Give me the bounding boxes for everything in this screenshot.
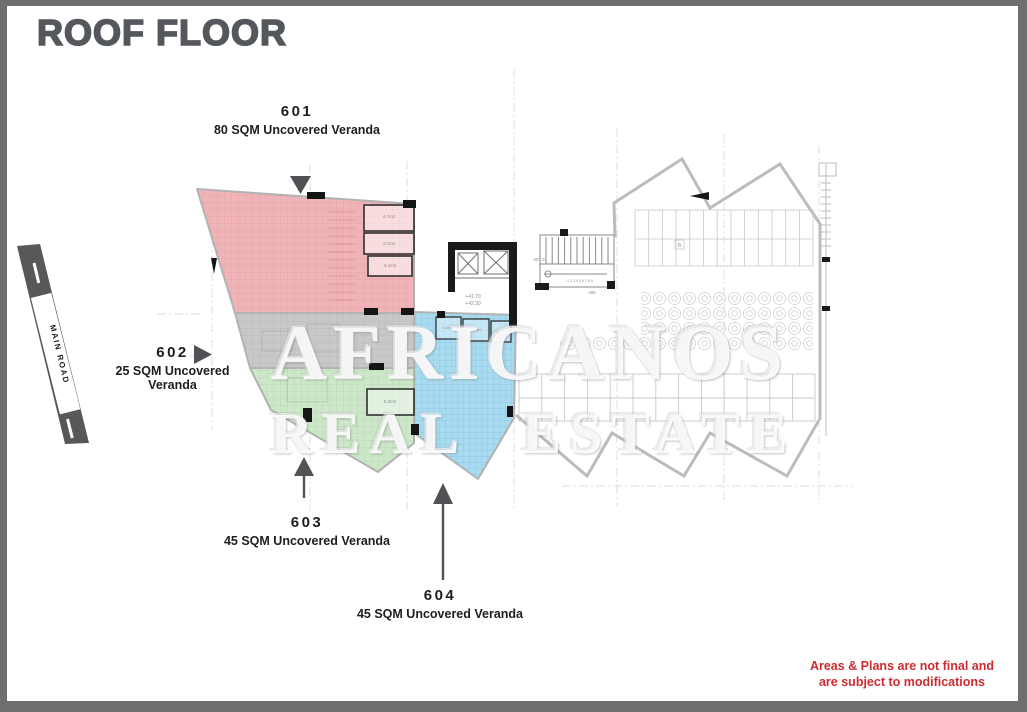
svg-text:5.0m2: 5.0m2: [384, 399, 397, 404]
unit-604-arrow-up-icon: [433, 483, 453, 580]
svg-text:1 2 3 4 5 6 7 8 9: 1 2 3 4 5 6 7 8 9: [567, 279, 593, 283]
svg-text:3.6m2: 3.6m2: [470, 327, 482, 332]
building-core: [448, 229, 615, 326]
svg-text:485: 485: [588, 290, 596, 295]
core-wall-top: [448, 242, 516, 250]
disclaimer-line2: are subject to modifications: [782, 674, 1022, 690]
unit-604-description: 45 SQM Uncovered Veranda: [355, 607, 525, 621]
unit-603-description: 45 SQM Uncovered Veranda: [222, 534, 392, 548]
unit-602-description: 25 SQM Uncovered Veranda: [90, 364, 255, 392]
svg-text:4.7m2: 4.7m2: [383, 241, 396, 246]
core-wall-chunk-1: [535, 283, 549, 290]
unit-602-number: 602: [90, 344, 255, 361]
circle-field: [641, 292, 813, 352]
unit-601-description: 80 SQM Uncovered Veranda: [212, 123, 382, 137]
svg-text:307.9: 307.9: [533, 257, 545, 262]
elevator-shafts: [455, 251, 509, 278]
lower-pergola-grid: [519, 374, 815, 421]
right-roof-section: B: [516, 159, 836, 476]
svg-text:3.9m2: 3.9m2: [495, 329, 507, 334]
core-wall-left: [448, 242, 455, 292]
disclaimer-line1: Areas & Plans are not final and: [782, 658, 1022, 674]
unit-603-arrow-up-icon: [294, 457, 314, 498]
core-wall-right: [509, 242, 517, 326]
region-603-hatch: [250, 368, 414, 472]
svg-text:+42.30: +42.30: [465, 301, 481, 307]
sawtooth-bottom-outline: [516, 415, 819, 476]
core-wall-chunk-2: [607, 281, 615, 289]
unit-601-arrow-down-icon: [290, 176, 311, 194]
core-wall-chunk-3: [560, 229, 568, 236]
unit-603-label: 603 45 SQM Uncovered Veranda: [222, 514, 392, 548]
right-dimension-ruler: [819, 163, 836, 436]
svg-text:4.7m2: 4.7m2: [383, 214, 396, 219]
unit-604-label: 604 45 SQM Uncovered Veranda: [355, 587, 525, 621]
unit-604-number: 604: [355, 587, 525, 604]
circle-field-row-extension: [560, 336, 644, 352]
svg-text:6.4m2: 6.4m2: [442, 325, 454, 330]
unit-601-number: 601: [212, 103, 382, 120]
unit-603-number: 603: [222, 514, 392, 531]
main-road: MAIN ROAD: [17, 244, 89, 444]
unit-602-label: 602 25 SQM Uncovered Veranda: [90, 344, 255, 392]
svg-text:3.4m2: 3.4m2: [384, 263, 397, 268]
sawtooth-top-outline: [614, 159, 820, 420]
svg-text:+41.70: +41.70: [465, 294, 481, 300]
unit-601-label: 601 80 SQM Uncovered Veranda: [212, 103, 382, 137]
page-frame: ROOF FLOOR: [0, 0, 1027, 712]
disclaimer: Areas & Plans are not final and are subj…: [782, 658, 1022, 690]
north-marker-icon: [690, 192, 709, 200]
pergola-tag: B: [678, 243, 682, 249]
